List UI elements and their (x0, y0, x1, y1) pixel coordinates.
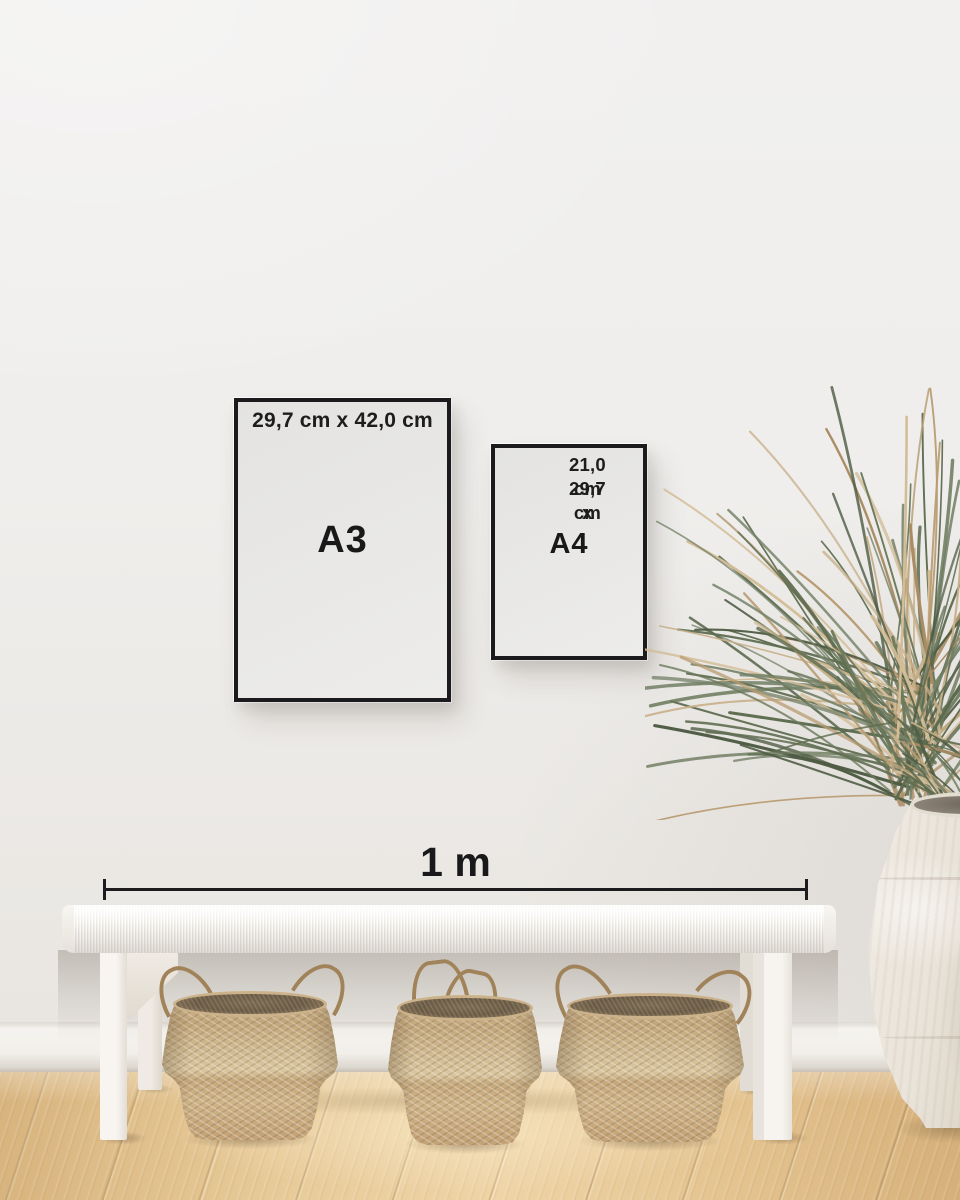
a4-dimensions-line2: 29,7 cm (569, 477, 606, 525)
scale-label: 1 m (103, 842, 808, 883)
bench-leg-front-left (100, 950, 127, 1140)
vase-ridge-line (874, 877, 960, 880)
scale-line (103, 888, 808, 891)
basket-right-opening (567, 993, 732, 1019)
bench-seat (62, 905, 836, 953)
bench-leg-front-right (753, 950, 792, 1140)
basket-middle (388, 1004, 542, 1145)
poster-frame-a4: A4 21,0 cm x 29,7 cm (491, 444, 647, 660)
basket-right (556, 1002, 744, 1142)
a4-size-label: A4 (549, 530, 588, 559)
basket-left-opening (173, 991, 328, 1017)
basket-left (162, 1000, 338, 1140)
a3-size-label: A3 (317, 521, 368, 559)
vase-body (866, 798, 960, 1128)
vase-ridge-line (882, 1036, 960, 1039)
dried-palm-plant (645, 300, 960, 820)
basket-left-body (162, 1000, 338, 1140)
scale-bar: 1 m (103, 842, 808, 892)
room-scene: A3 29,7 cm x 42,0 cm A4 21,0 cm x 29,7 c… (0, 0, 960, 1200)
basket-middle-opening (397, 995, 533, 1021)
basket-right-body (556, 1002, 744, 1142)
basket-middle-body (388, 1004, 542, 1145)
poster-frame-a3: A3 29,7 cm x 42,0 cm (234, 398, 451, 702)
a3-dimensions-text: 29,7 cm x 42,0 cm (252, 410, 433, 431)
ceramic-vase (866, 792, 960, 1132)
